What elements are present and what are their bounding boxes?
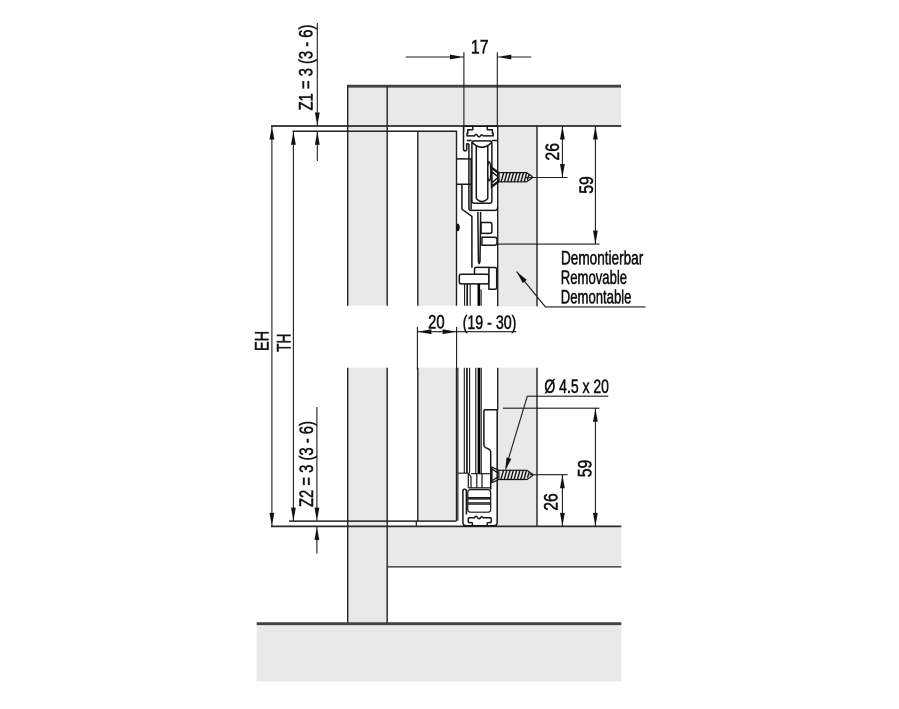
svg-text:Demontable: Demontable — [561, 287, 632, 308]
svg-text:59: 59 — [575, 176, 597, 194]
svg-text:26: 26 — [540, 493, 562, 511]
svg-text:EH: EH — [252, 331, 273, 351]
svg-text:20: 20 — [428, 312, 444, 333]
svg-text:TH: TH — [273, 334, 295, 352]
svg-text:Z2 = 3 (3 - 6): Z2 = 3 (3 - 6) — [296, 421, 317, 507]
svg-text:26: 26 — [541, 143, 563, 161]
svg-text:Z1 = 3 (3 - 6): Z1 = 3 (3 - 6) — [296, 25, 317, 111]
svg-text:17: 17 — [471, 36, 489, 58]
svg-text:Ø 4.5 x 20: Ø 4.5 x 20 — [544, 376, 609, 398]
svg-text:Demontierbar: Demontierbar — [561, 248, 644, 269]
svg-text:59: 59 — [574, 460, 596, 478]
svg-text:(19 - 30): (19 - 30) — [463, 312, 517, 333]
svg-text:Removable: Removable — [561, 268, 627, 289]
